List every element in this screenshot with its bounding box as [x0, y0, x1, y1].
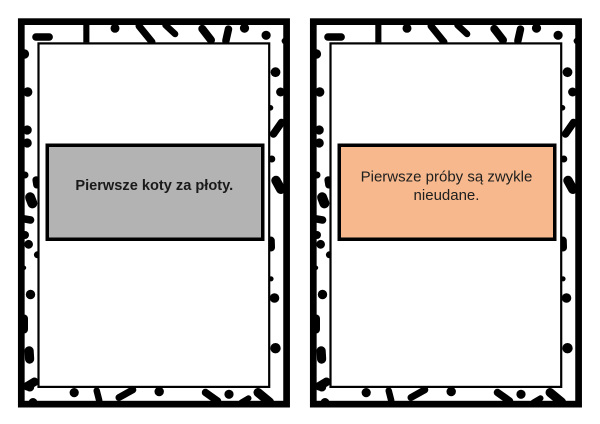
svg-text:nieudane.: nieudane.: [414, 187, 480, 204]
svg-text:Pierwsze próby są zwykle: Pierwsze próby są zwykle: [361, 169, 533, 186]
svg-text:Pierwsze koty za płoty.: Pierwsze koty za płoty.: [75, 178, 233, 194]
